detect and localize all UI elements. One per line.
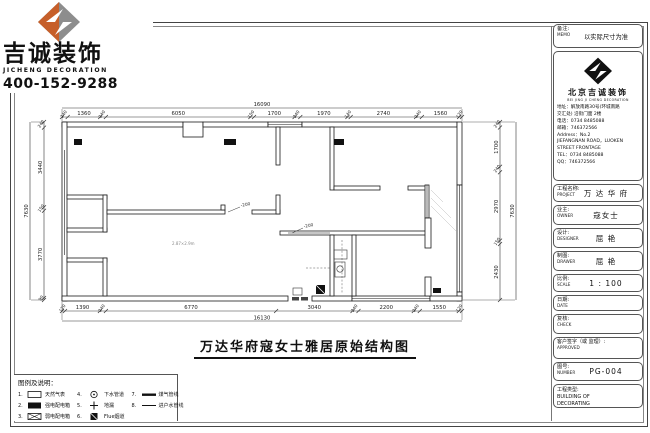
dim-label: 240 <box>413 109 423 119</box>
dim-label: 150 <box>37 203 47 213</box>
approved-box: 客户签字（或 监理）:APPROVED <box>553 337 643 359</box>
company-box: 北京吉诚装饰 BEI JING JI CHENG DECORATION 地址：解… <box>553 51 643 181</box>
scale-box: 比例:SCALE 1 : 100 <box>553 274 643 292</box>
dim-total-right: 7630 <box>510 204 516 218</box>
company-name-en: BEI JING JI CHENG DECORATION <box>567 98 629 102</box>
company-name-cn: 北京吉诚装饰 <box>568 87 628 98</box>
square-filled-icon <box>86 412 102 421</box>
dim-label: 240 <box>59 109 69 119</box>
dim-label: 240 <box>411 303 421 313</box>
beam-annotation: -200 <box>303 222 314 230</box>
dim-label: 1700 <box>494 140 500 154</box>
legend-title: 图例及说明： <box>18 377 177 387</box>
legend-item: 1.天然气表 <box>18 389 70 400</box>
dim-label: 140 <box>343 109 353 119</box>
dim-label: 3770 <box>38 247 44 261</box>
date-value <box>557 298 639 308</box>
logo-name-en: JICHENG DECORATION <box>3 67 153 74</box>
hatch-lines <box>431 190 456 231</box>
dim-total-top: 16090 <box>254 102 271 108</box>
circle-dot-icon <box>86 390 102 399</box>
dim-label: 1700 <box>268 111 282 117</box>
dim-label: 6050 <box>171 111 185 117</box>
thin-line-icon <box>141 401 157 410</box>
legend-items: 1.天然气表2.强电配电箱3.弱电配电箱4.下水管道5.地漏6.Flue烟道7.… <box>18 389 177 422</box>
dim-label: 240 <box>493 164 503 174</box>
logo-diamond-icon <box>37 1 81 43</box>
dim-label: 2430 <box>494 265 500 279</box>
dim-total-left: 7630 <box>24 204 30 218</box>
dim-label: 240 <box>37 119 47 129</box>
dim-label: 90 <box>37 294 45 302</box>
dim-label: 3440 <box>38 160 44 174</box>
walls <box>62 122 462 301</box>
memo-box: 备注:MEMO 以实际尺寸为准 <box>553 24 643 48</box>
legend-item-label: Flue烟道 <box>104 413 125 420</box>
plus-icon <box>86 401 102 410</box>
legend-item-number: 6. <box>77 414 84 420</box>
dim-label: 240 <box>350 303 360 313</box>
owner-box: 业主:OWNER 寇女士 <box>553 205 643 225</box>
legend-item-number: 1. <box>18 392 25 398</box>
plan-black-symbols <box>74 139 441 301</box>
legend-item-number: 3. <box>18 414 25 420</box>
legend-item: 2.强电配电箱 <box>18 400 70 411</box>
legend-item-number: 8. <box>132 403 139 409</box>
dim-label: 120 <box>455 109 465 119</box>
legend-item-label: 进户水管线 <box>159 402 184 409</box>
date-box: 日期:DATE <box>553 295 643 311</box>
legend-item: 8.进户水管线 <box>132 400 184 411</box>
legend-item: 3.弱电配电箱 <box>18 411 70 422</box>
legend-item: 6.Flue烟道 <box>77 411 125 422</box>
rect-filled-icon <box>27 401 43 410</box>
legend-item-label: 地漏 <box>104 402 114 409</box>
legend-item-number: 2. <box>18 403 25 409</box>
dim-label: 3040 <box>308 305 322 311</box>
company-diamond-icon <box>583 57 613 85</box>
company-logo: 吉诚装饰 JICHENG DECORATION 400-152-9288 <box>0 0 153 93</box>
rect-x-icon <box>27 412 43 421</box>
number-box: 图号:NUMBER PG-004 <box>553 362 643 381</box>
legend-item-label: 下水管道 <box>104 391 124 398</box>
rect-outline-icon <box>27 390 43 399</box>
dim-label: 240 <box>493 119 503 129</box>
logo-name-cn: 吉诚装饰 <box>3 43 153 66</box>
drawer-box: 制图:DRAWER 屈 艳 <box>553 251 643 271</box>
dim-label: 1550 <box>433 305 447 311</box>
type-value: DECORATING <box>557 401 639 408</box>
legend-item-label: 煤气管线 <box>159 391 179 398</box>
legend-item-number: 7. <box>132 392 139 398</box>
dim-label: 150 <box>247 109 257 119</box>
beam-annotation: -200 <box>240 201 251 209</box>
thick-line-icon <box>141 390 157 399</box>
dim-label: 2970 <box>494 199 500 213</box>
dim-label: 6770 <box>184 305 198 311</box>
legend-item-number: 5. <box>77 403 84 409</box>
legend-item: 7.煤气管线 <box>132 389 184 400</box>
legend-item: 5.地漏 <box>77 400 125 411</box>
dim-label: 2740 <box>377 111 391 117</box>
legend-item-label: 弱电配电箱 <box>45 413 70 420</box>
check-box: 复核:CHECK <box>553 314 643 334</box>
project-box: 工程名称:PROJECT 万 达 华 府 <box>553 184 643 202</box>
legend-item-number: 4. <box>77 392 84 398</box>
dim-label: 120 <box>58 303 68 313</box>
drawing-title: 万达华府寇女士雅居原始结构图 <box>150 336 460 359</box>
dim-label: 1560 <box>434 111 448 117</box>
dim-label: 240 <box>97 109 107 119</box>
dim-label: 1970 <box>317 111 331 117</box>
dim-label: 2200 <box>379 305 393 311</box>
dim-label: 150 <box>493 236 503 246</box>
dim-label: 240 <box>292 109 302 119</box>
legend-item: 4.下水管道 <box>77 389 125 400</box>
dim-label: 120 <box>455 303 465 313</box>
dim-label: 240 <box>97 303 107 313</box>
drawing-sheet: 吉诚装饰 JICHENG DECORATION 400-152-9288 <box>0 0 650 433</box>
title-block: 备注:MEMO 以实际尺寸为准 北京吉诚装饰 BEI JING JI CHENG… <box>553 24 643 408</box>
designer-box: 设计:DESIGNER 屈 艳 <box>553 228 643 248</box>
legend-item-label: 强电配电箱 <box>45 402 70 409</box>
logo-phone: 400-152-9288 <box>3 76 153 92</box>
type-box: 工程类型: BUILDING OF DECORATING <box>553 384 643 408</box>
legend: 图例及说明： 1.天然气表2.强电配电箱3.弱电配电箱4.下水管道5.地漏6.F… <box>14 374 178 421</box>
company-contact: 地址：解放南路30号(环城南路 交汇处) 沿街门面 2楼 电话：0734 848… <box>557 105 639 167</box>
dim-label: 1360 <box>77 111 91 117</box>
dim-label: 1390 <box>76 305 90 311</box>
plan-note: 2.87×2.9m <box>172 241 195 246</box>
legend-item-label: 天然气表 <box>45 391 65 398</box>
dim-total-bottom: 16130 <box>254 316 271 322</box>
